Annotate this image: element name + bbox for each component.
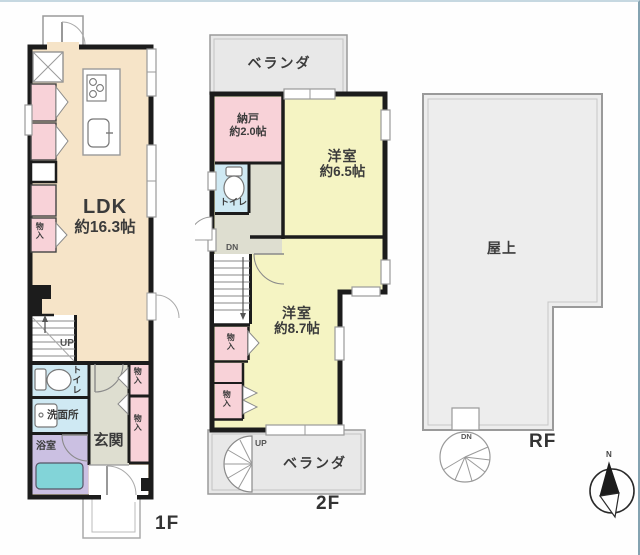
entry-floor: [89, 465, 148, 495]
storage-label-1f-left: 物入: [35, 222, 44, 240]
washroom-label: 洗面所: [47, 409, 79, 421]
ldk-name: LDK: [55, 196, 155, 219]
floor-label-1f: 1F: [155, 513, 179, 535]
storage-label-2f-a: 物入: [226, 333, 235, 351]
entrance-label: 玄関: [89, 432, 128, 449]
toilet-fixture-2f: [224, 167, 244, 200]
floor-rf-drawing: [410, 2, 640, 555]
room1-name: 洋室: [300, 148, 385, 164]
room2-area: 約8.7帖: [256, 321, 338, 337]
compass-north-label: N: [606, 450, 612, 459]
nando-area: 約2.0帖: [216, 126, 280, 139]
stairs-down-label-2f: DN: [226, 243, 238, 253]
spiral-up-label: UP: [255, 439, 267, 449]
bathroom-label: 浴室: [36, 441, 56, 453]
storage-label-1f-a: 物入: [133, 367, 142, 385]
room2-label: 洋室 約8.7帖: [256, 305, 338, 337]
1f-porch: [83, 497, 140, 538]
stairs-up-label-1f: UP: [60, 338, 74, 350]
kitchen-island: [83, 69, 120, 155]
sink: [88, 119, 109, 147]
veranda-bottom-label: ベランダ: [283, 455, 347, 471]
floor-1f-drawing: [0, 2, 200, 555]
storage-label-1f-b: 物入: [133, 414, 142, 432]
nando-label: 納戸 約2.0帖: [216, 113, 280, 138]
bathtub: [36, 463, 83, 489]
spiral-down-label-rf: DN: [461, 433, 472, 442]
storage-label-2f-c: 物入: [222, 390, 231, 408]
compass: [590, 463, 634, 517]
1f-side-door: [147, 293, 179, 320]
room2-name: 洋室: [256, 305, 338, 321]
nando-name: 納戸: [216, 113, 280, 126]
2f-left-wedge: [195, 217, 212, 240]
floor-2f-drawing: [195, 2, 410, 555]
ldk-label: LDK 約16.3帖: [55, 196, 155, 237]
veranda-top-label: ベランダ: [212, 55, 347, 71]
room1-label: 洋室 約6.5帖: [300, 148, 385, 180]
floor-label-rf: RF: [529, 431, 556, 453]
toilet-fixture-1f: [35, 369, 71, 391]
toilet-label-1f: トイレ: [71, 365, 81, 395]
toilet-label-2f: トイレ: [220, 197, 247, 207]
floor-label-2f: 2F: [316, 493, 340, 515]
rf-outline: [423, 94, 602, 430]
floor-plan-image: LDK 約16.3帖 UP トイレ 洗面所 浴室 玄関 物入 物入 物入 1F …: [0, 0, 640, 555]
ldk-area: 約16.3帖: [55, 219, 155, 237]
room-storage-2f-b: [215, 363, 242, 382]
room1-area: 約6.5帖: [300, 164, 385, 180]
rooftop-label: 屋上: [487, 240, 517, 256]
